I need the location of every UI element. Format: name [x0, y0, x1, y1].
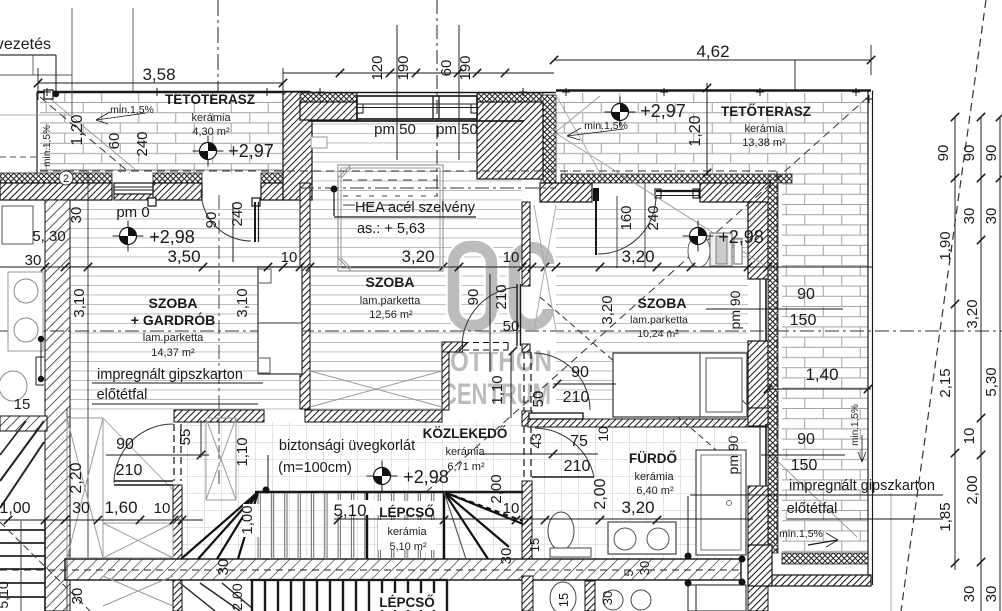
svg-text:lam.parketta: lam.parketta	[630, 314, 688, 326]
svg-text:SZOBA: SZOBA	[149, 295, 198, 311]
svg-text:impregnált gipszkarton: impregnált gipszkarton	[97, 367, 243, 383]
svg-text:3,20: 3,20	[621, 498, 654, 517]
svg-text:50: 50	[503, 318, 520, 335]
svg-text:30: 30	[25, 252, 42, 269]
svg-text:3,50: 3,50	[167, 247, 200, 266]
svg-text:10: 10	[961, 428, 978, 445]
svg-text:30: 30	[498, 548, 515, 565]
svg-text:+2,98: +2,98	[403, 467, 449, 487]
svg-text:90: 90	[797, 286, 815, 303]
svg-text:+2,98: +2,98	[149, 227, 195, 247]
svg-text:5,30: 5,30	[983, 367, 1000, 396]
svg-text:120: 120	[369, 55, 386, 80]
svg-text:KÖZLEKEDŐ: KÖZLEKEDŐ	[423, 426, 508, 441]
svg-text:90: 90	[203, 212, 220, 229]
svg-text:1,00: 1,00	[239, 505, 256, 534]
svg-text:2,00: 2,00	[592, 478, 609, 509]
svg-text:előtétfal: előtétfal	[97, 387, 148, 403]
svg-text:2: 2	[63, 173, 69, 185]
svg-text:6,71 m²: 6,71 m²	[447, 461, 485, 473]
svg-text:FÜRDŐ: FÜRDŐ	[629, 451, 677, 466]
svg-text:min.1,5%: min.1,5%	[584, 120, 628, 132]
svg-text:TETŐTERASZ: TETŐTERASZ	[721, 104, 811, 119]
svg-text:TETŐTERASZ: TETŐTERASZ	[165, 92, 255, 107]
svg-text:pm 50: pm 50	[436, 121, 478, 138]
svg-text:2,00: 2,00	[229, 583, 245, 610]
svg-text:4,62: 4,62	[696, 42, 729, 61]
svg-text:3,20: 3,20	[621, 247, 654, 266]
svg-text:1,40: 1,40	[805, 365, 838, 384]
svg-text:LÉPCSŐ: LÉPCSŐ	[379, 505, 435, 520]
svg-text:15: 15	[527, 538, 542, 552]
svg-text:1,60: 1,60	[104, 498, 137, 517]
svg-text:HEA acél szelvény: HEA acél szelvény	[355, 200, 476, 216]
svg-text:+2,97: +2,97	[228, 141, 274, 161]
svg-text:biztonsági üvegkorlát: biztonsági üvegkorlát	[279, 438, 415, 454]
svg-text:kerámia: kerámia	[445, 446, 485, 458]
svg-text:LÉPCSŐ: LÉPCSŐ	[379, 595, 435, 610]
svg-text:30: 30	[215, 559, 232, 576]
svg-text:min.1,5%: min.1,5%	[850, 404, 861, 446]
svg-text:30: 30	[983, 208, 1000, 225]
svg-text:190: 190	[395, 55, 412, 80]
svg-text:30: 30	[961, 208, 978, 225]
svg-text:30: 30	[600, 591, 615, 605]
svg-text:150: 150	[791, 457, 818, 474]
svg-text:43: 43	[528, 433, 544, 449]
svg-text:+2,97: +2,97	[640, 101, 686, 121]
svg-text:(m=100cm): (m=100cm)	[278, 460, 352, 476]
svg-text:90: 90	[961, 145, 978, 162]
svg-text:3,58: 3,58	[142, 65, 175, 84]
svg-text:pm 0: pm 0	[116, 204, 149, 221]
svg-text:90: 90	[116, 436, 134, 453]
svg-text:10: 10	[154, 500, 171, 517]
svg-text:30: 30	[961, 586, 978, 603]
svg-text:3,10: 3,10	[71, 288, 88, 317]
svg-text:13,38 m²: 13,38 m²	[742, 137, 786, 149]
svg-text:10,24 m²: 10,24 m²	[637, 328, 679, 340]
svg-text:1,10: 1,10	[489, 375, 506, 404]
svg-text:5,10: 5,10	[0, 581, 11, 608]
svg-text:vezetés: vezetés	[0, 36, 51, 53]
svg-text:10: 10	[503, 500, 520, 517]
svg-text:210: 210	[563, 389, 590, 406]
svg-text:240: 240	[229, 201, 246, 226]
svg-text:2,15: 2,15	[937, 368, 954, 397]
svg-text:30: 30	[72, 500, 90, 517]
svg-text:3,10: 3,10	[234, 288, 251, 317]
svg-text:160: 160	[618, 205, 635, 230]
svg-text:1,20: 1,20	[687, 115, 704, 146]
svg-text:75: 75	[570, 433, 588, 450]
svg-text:1,00: 1,00	[0, 500, 31, 517]
svg-text:as.: + 5,63: as.: + 5,63	[357, 221, 425, 237]
svg-text:SZOBA: SZOBA	[366, 274, 415, 290]
svg-text:30: 30	[983, 586, 1000, 603]
svg-text:pm 90: pm 90	[727, 290, 743, 329]
svg-text:12,56 m²: 12,56 m²	[369, 309, 413, 321]
svg-text:210: 210	[493, 284, 510, 309]
svg-text:kerámia: kerámia	[387, 526, 427, 538]
svg-text:min.1,5%: min.1,5%	[779, 528, 823, 540]
svg-text:6,40 m²: 6,40 m²	[636, 485, 674, 497]
svg-text:3,20: 3,20	[401, 247, 434, 266]
svg-text:min.1,5%: min.1,5%	[110, 104, 154, 116]
svg-text:15: 15	[556, 593, 571, 607]
svg-text:14,37 m²: 14,37 m²	[151, 347, 195, 359]
svg-text:pm 50: pm 50	[374, 121, 416, 138]
svg-text:impregnált gipszkarton: impregnált gipszkarton	[789, 478, 935, 494]
svg-text:kerámia: kerámia	[191, 112, 231, 124]
svg-text:1,20: 1,20	[69, 114, 86, 145]
svg-text:15: 15	[14, 396, 31, 413]
svg-text:1,10: 1,10	[234, 437, 251, 466]
svg-text:5, 30: 5, 30	[32, 228, 65, 245]
svg-text:90: 90	[935, 145, 952, 162]
svg-text:60: 60	[106, 133, 123, 150]
svg-text:2,20: 2,20	[68, 462, 85, 493]
svg-text:150: 150	[790, 312, 817, 329]
svg-text:55: 55	[177, 429, 194, 446]
svg-text:+2,98: +2,98	[718, 227, 764, 247]
svg-text:4,30 m²: 4,30 m²	[192, 126, 230, 138]
svg-text:30: 30	[637, 561, 652, 575]
svg-text:90: 90	[465, 289, 482, 306]
svg-text:5,10: 5,10	[333, 501, 366, 520]
svg-text:30: 30	[69, 588, 86, 605]
svg-text:5,10 m²: 5,10 m²	[389, 541, 427, 553]
svg-text:3,20: 3,20	[599, 295, 616, 324]
svg-text:lam.parketta: lam.parketta	[360, 295, 421, 307]
svg-text:min.1,5%: min.1,5%	[42, 125, 53, 167]
svg-text:210: 210	[116, 462, 143, 479]
svg-text:előtétfal: előtétfal	[787, 501, 838, 517]
svg-text:10: 10	[281, 249, 298, 266]
svg-text:1,85: 1,85	[937, 502, 954, 531]
svg-text:pm 90: pm 90	[725, 435, 741, 474]
svg-text:2,00: 2,00	[964, 475, 981, 504]
svg-text:lam.parketta: lam.parketta	[143, 332, 204, 344]
svg-text:60: 60	[438, 60, 455, 77]
svg-text:kerámia: kerámia	[634, 471, 674, 483]
svg-text:3,20: 3,20	[964, 299, 981, 328]
svg-text:kerámia: kerámia	[744, 123, 784, 135]
svg-text:50: 50	[530, 391, 547, 408]
svg-text:10: 10	[595, 426, 611, 442]
svg-text:10: 10	[503, 249, 520, 266]
svg-text:5: 5	[622, 569, 636, 576]
svg-text:90: 90	[797, 431, 815, 448]
svg-text:+ GARDRÓB: + GARDRÓB	[131, 311, 215, 328]
svg-text:90: 90	[571, 364, 589, 381]
svg-text:SZOBA: SZOBA	[638, 295, 687, 311]
svg-text:190: 190	[457, 55, 474, 80]
svg-text:240: 240	[134, 131, 151, 156]
svg-text:210: 210	[564, 458, 591, 475]
svg-text:90: 90	[983, 145, 1000, 162]
svg-text:1,90: 1,90	[937, 231, 954, 260]
svg-text:30: 30	[68, 207, 85, 224]
